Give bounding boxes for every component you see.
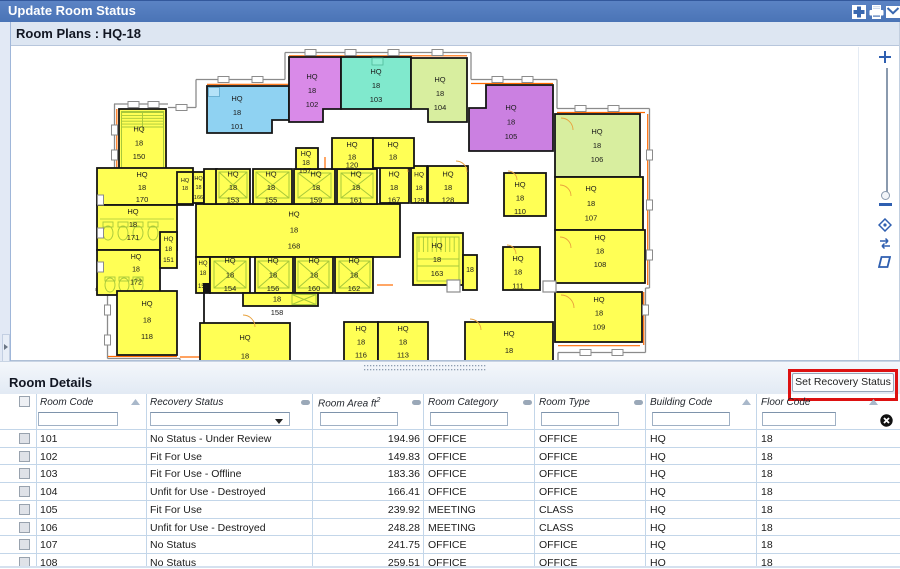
svg-text:18: 18 xyxy=(466,267,474,274)
svg-text:107: 107 xyxy=(585,214,598,223)
svg-text:159: 159 xyxy=(310,196,323,205)
svg-text:HQ: HQ xyxy=(306,72,317,81)
svg-text:HQ: HQ xyxy=(388,170,399,179)
svg-text:HQ: HQ xyxy=(593,295,604,304)
svg-text:158: 158 xyxy=(271,308,284,317)
svg-text:18: 18 xyxy=(587,199,595,208)
svg-text:104: 104 xyxy=(434,103,447,112)
svg-text:168: 168 xyxy=(288,242,301,251)
svg-text:18: 18 xyxy=(200,271,207,277)
svg-text:18: 18 xyxy=(182,186,188,192)
svg-text:129: 129 xyxy=(414,198,425,205)
svg-text:HQ: HQ xyxy=(355,324,366,333)
svg-text:HQ: HQ xyxy=(434,75,445,84)
svg-text:18: 18 xyxy=(390,183,398,192)
svg-text:18: 18 xyxy=(165,246,173,253)
svg-text:151: 151 xyxy=(163,257,174,264)
svg-text:18: 18 xyxy=(596,247,604,256)
svg-text:167: 167 xyxy=(388,196,401,205)
svg-text:HQ: HQ xyxy=(181,178,190,184)
svg-text:18: 18 xyxy=(514,268,522,277)
svg-text:HQ: HQ xyxy=(133,125,144,134)
svg-text:18: 18 xyxy=(143,316,151,325)
svg-text:HQ: HQ xyxy=(267,256,278,265)
svg-text:156: 156 xyxy=(267,284,280,293)
svg-text:HQ: HQ xyxy=(585,184,596,193)
svg-text:18: 18 xyxy=(233,108,241,117)
svg-text:162: 162 xyxy=(348,284,361,293)
svg-text:152: 152 xyxy=(198,284,209,290)
svg-text:18: 18 xyxy=(372,81,380,90)
svg-text:HQ: HQ xyxy=(442,170,453,179)
svg-text:HQ: HQ xyxy=(231,94,242,103)
svg-text:150: 150 xyxy=(133,152,146,161)
svg-text:171: 171 xyxy=(127,233,140,242)
svg-text:103: 103 xyxy=(370,95,383,104)
svg-text:18: 18 xyxy=(135,139,143,148)
svg-text:18: 18 xyxy=(444,183,452,192)
svg-text:HQ: HQ xyxy=(387,140,398,149)
svg-text:113: 113 xyxy=(397,351,409,360)
svg-text:160: 160 xyxy=(308,284,321,293)
svg-text:18: 18 xyxy=(505,346,513,355)
svg-text:111: 111 xyxy=(512,282,523,291)
svg-text:120: 120 xyxy=(346,161,359,170)
svg-text:153: 153 xyxy=(227,196,240,205)
svg-text:HQ: HQ xyxy=(301,151,312,158)
svg-text:118: 118 xyxy=(141,332,153,341)
svg-text:HQ: HQ xyxy=(310,170,321,179)
svg-text:HQ: HQ xyxy=(431,241,442,250)
svg-text:HQ: HQ xyxy=(199,261,208,267)
svg-text:HQ: HQ xyxy=(591,127,602,136)
svg-text:HQ: HQ xyxy=(346,140,357,149)
svg-text:18: 18 xyxy=(436,89,444,98)
svg-text:HQ: HQ xyxy=(265,170,276,179)
svg-text:HQ: HQ xyxy=(397,324,408,333)
svg-text:18: 18 xyxy=(415,185,423,192)
svg-text:HQ: HQ xyxy=(512,254,523,263)
svg-text:HQ: HQ xyxy=(308,256,319,265)
svg-text:18: 18 xyxy=(516,194,524,203)
svg-text:18: 18 xyxy=(595,309,603,318)
svg-text:18: 18 xyxy=(195,185,201,191)
svg-text:18: 18 xyxy=(226,271,234,280)
svg-text:101: 101 xyxy=(231,122,244,131)
svg-text:HQ: HQ xyxy=(348,256,359,265)
svg-text:HQ: HQ xyxy=(414,172,424,179)
svg-text:18: 18 xyxy=(389,153,397,162)
svg-text:109: 109 xyxy=(593,323,606,332)
svg-text:18: 18 xyxy=(229,183,237,192)
svg-text:163: 163 xyxy=(431,269,444,278)
svg-text:HQ: HQ xyxy=(127,207,138,216)
svg-text:HQ: HQ xyxy=(288,210,299,219)
svg-text:18: 18 xyxy=(129,220,137,229)
svg-text:HQ: HQ xyxy=(370,67,381,76)
svg-text:18: 18 xyxy=(138,183,146,192)
svg-text:HQ: HQ xyxy=(227,170,238,179)
svg-text:HQ: HQ xyxy=(194,176,203,182)
svg-text:128: 128 xyxy=(442,196,455,205)
svg-text:18: 18 xyxy=(312,183,320,192)
svg-text:18: 18 xyxy=(507,118,515,127)
svg-text:18: 18 xyxy=(132,267,140,274)
svg-text:155: 155 xyxy=(265,196,278,205)
svg-text:HQ: HQ xyxy=(224,256,235,265)
svg-text:172: 172 xyxy=(130,280,142,287)
svg-text:HQ: HQ xyxy=(350,170,361,179)
svg-text:18: 18 xyxy=(350,271,358,280)
svg-text:18: 18 xyxy=(269,271,277,280)
svg-text:170: 170 xyxy=(136,195,149,204)
svg-text:HQ: HQ xyxy=(164,236,174,243)
svg-text:HQ: HQ xyxy=(505,103,516,112)
svg-text:110: 110 xyxy=(514,207,526,216)
svg-text:HQ: HQ xyxy=(141,299,152,308)
svg-text:HQ: HQ xyxy=(136,170,147,179)
svg-text:154: 154 xyxy=(224,284,237,293)
svg-text:18: 18 xyxy=(273,295,281,304)
svg-text:106: 106 xyxy=(591,155,604,164)
svg-text:18: 18 xyxy=(290,226,298,235)
svg-text:HQ: HQ xyxy=(514,180,525,189)
svg-text:18: 18 xyxy=(310,271,318,280)
svg-text:HQ: HQ xyxy=(131,254,142,261)
svg-text:18: 18 xyxy=(352,183,360,192)
svg-text:18: 18 xyxy=(357,338,365,347)
svg-text:18: 18 xyxy=(433,255,441,264)
svg-text:116: 116 xyxy=(355,351,367,360)
svg-text:105: 105 xyxy=(505,132,518,141)
svg-text:161: 161 xyxy=(350,196,363,205)
svg-text:HQ: HQ xyxy=(594,233,605,242)
svg-text:108: 108 xyxy=(594,260,607,269)
svg-text:157: 157 xyxy=(299,166,312,175)
svg-text:166: 166 xyxy=(194,195,203,201)
svg-text:HQ: HQ xyxy=(503,329,514,338)
svg-text:18: 18 xyxy=(593,141,601,150)
svg-text:18: 18 xyxy=(267,183,275,192)
svg-text:18: 18 xyxy=(308,86,316,95)
svg-text:18: 18 xyxy=(399,338,407,347)
svg-text:HQ: HQ xyxy=(239,333,250,342)
svg-text:102: 102 xyxy=(306,100,319,109)
